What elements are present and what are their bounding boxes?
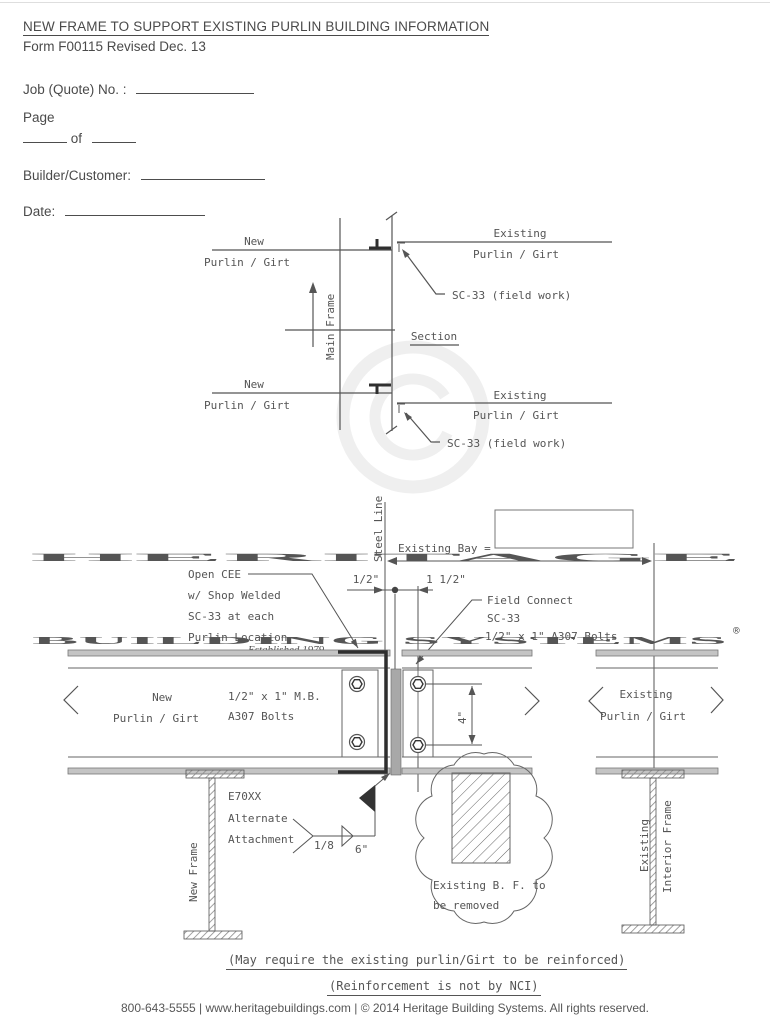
open-cee-note-4: Purlin Location	[188, 631, 287, 644]
weld-note-1: E70XX	[228, 790, 261, 803]
weld-note-2: Alternate	[228, 812, 288, 825]
sc33-note-top: SC-33 (field work)	[452, 289, 571, 302]
existing-interior-frame-column	[622, 770, 684, 933]
clip-angle-top	[369, 239, 391, 248]
new-purlin-girt-top: Purlin / Girt	[204, 256, 290, 269]
page-label: Page	[23, 110, 55, 125]
page-of-field: of	[23, 130, 136, 146]
existing-bf-hatch	[452, 773, 510, 863]
footer-contact: 800-643-5555 | www.heritagebuildings.com…	[0, 1001, 770, 1015]
new-frame-label: New Frame	[187, 842, 200, 902]
new-purlin-girt-bottom: Purlin / Girt	[204, 399, 290, 412]
shop-clips	[369, 239, 391, 394]
half-inch-dim-label: 1/2"	[353, 573, 380, 586]
sc33-leader-top	[404, 251, 445, 294]
page-number-blank	[23, 130, 67, 143]
builder-customer-field: Builder/Customer:	[23, 167, 265, 183]
section-title: Section	[411, 330, 457, 343]
bolt-icon	[350, 735, 365, 750]
job-quote-field: Job (Quote) No. :	[23, 81, 254, 97]
existing-interior-label-1: Existing	[638, 819, 651, 872]
existing-bay-input-box	[495, 510, 633, 548]
bf-note-1: Existing B. F. to	[433, 879, 546, 892]
new-beam-label: New	[152, 691, 172, 704]
main-frame-label: Main Frame	[324, 294, 337, 360]
job-quote-label: Job (Quote) No. :	[23, 82, 127, 97]
mb-bolts-note-1: 1/2" x 1" M.B.	[228, 690, 321, 703]
job-quote-blank	[136, 81, 254, 94]
up-arrowhead	[309, 282, 317, 293]
sc33-note-bottom: SC-33 (field work)	[447, 437, 566, 450]
nci-note: (Reinforcement is not by NCI)	[327, 979, 541, 993]
one-half-inch-dim-label: 1 1/2"	[426, 573, 466, 586]
form-revision-info: Form F00115 Revised Dec. 13	[23, 39, 206, 54]
existing-bay-label: Existing Bay =	[398, 542, 491, 555]
weld-note-3: Attachment	[228, 833, 294, 846]
bolt-icon	[350, 677, 365, 692]
open-cee-note-1: Open CEE	[188, 568, 241, 581]
date-field: Date:	[23, 203, 205, 219]
existing-beam-purlin-girt: Purlin / Girt	[600, 710, 686, 723]
existing-label-top: Existing	[494, 227, 547, 240]
new-label-bottom: New	[244, 378, 264, 391]
existing-purlin-girt-bottom: Purlin / Girt	[473, 409, 559, 422]
bf-note-2: be removed	[433, 899, 499, 912]
existing-purlin-girt-top: Purlin / Girt	[473, 248, 559, 261]
weld-flag-icon	[359, 785, 375, 812]
open-cee-note-3: SC-33 at each	[188, 610, 274, 623]
page-title: NEW FRAME TO SUPPORT EXISTING PURLIN BUI…	[23, 19, 489, 34]
existing-label-bottom: Existing	[494, 389, 547, 402]
date-blank	[65, 203, 205, 216]
open-cee-note-2: w/ Shop Welded	[188, 589, 281, 602]
field-clip-plate	[391, 669, 401, 775]
new-label-top: New	[244, 235, 264, 248]
field-connect-note-1: Field Connect	[487, 594, 573, 607]
connection-detail-diagram: Steel Line Existing Bay = 1/2" 1 1/2" Op…	[0, 480, 770, 960]
date-label: Date:	[23, 204, 55, 219]
of-label: of	[71, 131, 82, 146]
existing-interior-label-2: Interior Frame	[661, 800, 674, 893]
four-inch-dim-label: 4"	[456, 711, 469, 724]
weld-length-label: 6"	[355, 843, 368, 856]
reinforce-note: (May require the existing purlin/Girt to…	[226, 953, 627, 967]
document-page: HERITAGE BUILDING SYSTEMS ® Established …	[0, 0, 770, 1024]
clip-tick-bottom	[397, 404, 405, 413]
sc33-arrowhead-bottom	[404, 412, 412, 421]
bolt-icon	[411, 738, 426, 753]
field-connect-note-2: SC-33	[487, 612, 520, 625]
new-beam-purlin-girt: Purlin / Girt	[113, 712, 199, 725]
section-view-diagram: New Purlin / Girt Existing Purlin / Girt…	[200, 205, 630, 470]
field-connect-note-3: 1/2" x 1" A307 Bolts	[485, 630, 617, 643]
bolt-icon	[411, 677, 426, 692]
builder-customer-label: Builder/Customer:	[23, 168, 131, 183]
page-total-blank	[92, 130, 136, 143]
builder-customer-blank	[141, 167, 265, 180]
steel-line-label: Steel Line	[372, 496, 385, 562]
mb-bolts-note-2: A307 Bolts	[228, 710, 294, 723]
existing-beam-label: Existing	[620, 688, 673, 701]
weld-size-label: 1/8	[314, 839, 334, 852]
